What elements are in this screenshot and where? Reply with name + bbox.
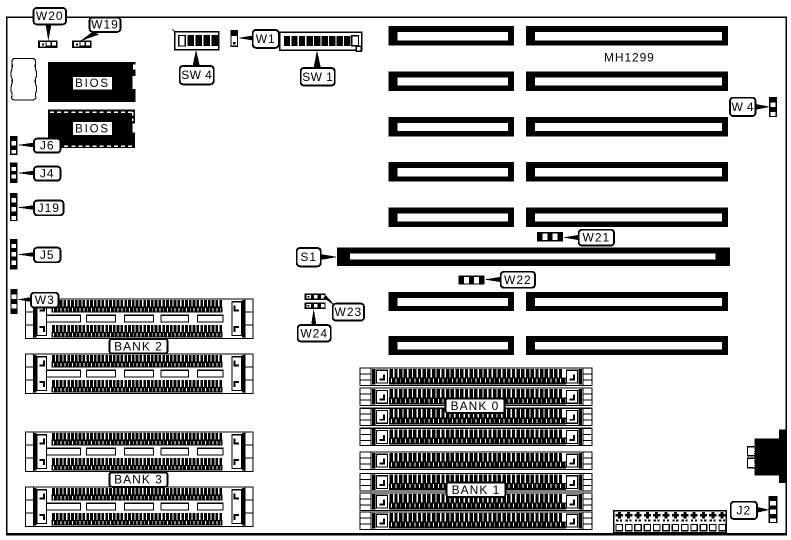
svg-text:BIOS: BIOS xyxy=(75,123,110,135)
svg-text:W24: W24 xyxy=(300,326,328,340)
svg-text:BANK 1: BANK 1 xyxy=(452,483,501,497)
svg-text:J2: J2 xyxy=(737,503,752,517)
svg-text:SW 4: SW 4 xyxy=(181,68,212,82)
svg-text:W3: W3 xyxy=(35,293,55,307)
svg-text:BANK 2: BANK 2 xyxy=(114,339,163,353)
svg-text:J5: J5 xyxy=(40,248,55,262)
svg-text:W23: W23 xyxy=(335,305,363,319)
svg-text:W21: W21 xyxy=(583,231,611,245)
svg-text:W1: W1 xyxy=(256,32,276,46)
svg-text:MH1299: MH1299 xyxy=(604,51,655,65)
svg-text:W19: W19 xyxy=(91,18,119,32)
svg-text:W20: W20 xyxy=(36,9,64,23)
svg-text:J19: J19 xyxy=(38,201,60,215)
svg-text:BIOS: BIOS xyxy=(75,78,110,90)
svg-text:BANK 0: BANK 0 xyxy=(451,399,500,413)
svg-text:SW 1: SW 1 xyxy=(302,70,333,84)
svg-text:J4: J4 xyxy=(40,167,55,181)
svg-text:J6: J6 xyxy=(40,139,55,153)
svg-text:BANK 3: BANK 3 xyxy=(114,473,163,487)
svg-text:W 4: W 4 xyxy=(731,100,754,114)
svg-text:W22: W22 xyxy=(504,273,532,287)
svg-text:S1: S1 xyxy=(300,250,317,264)
